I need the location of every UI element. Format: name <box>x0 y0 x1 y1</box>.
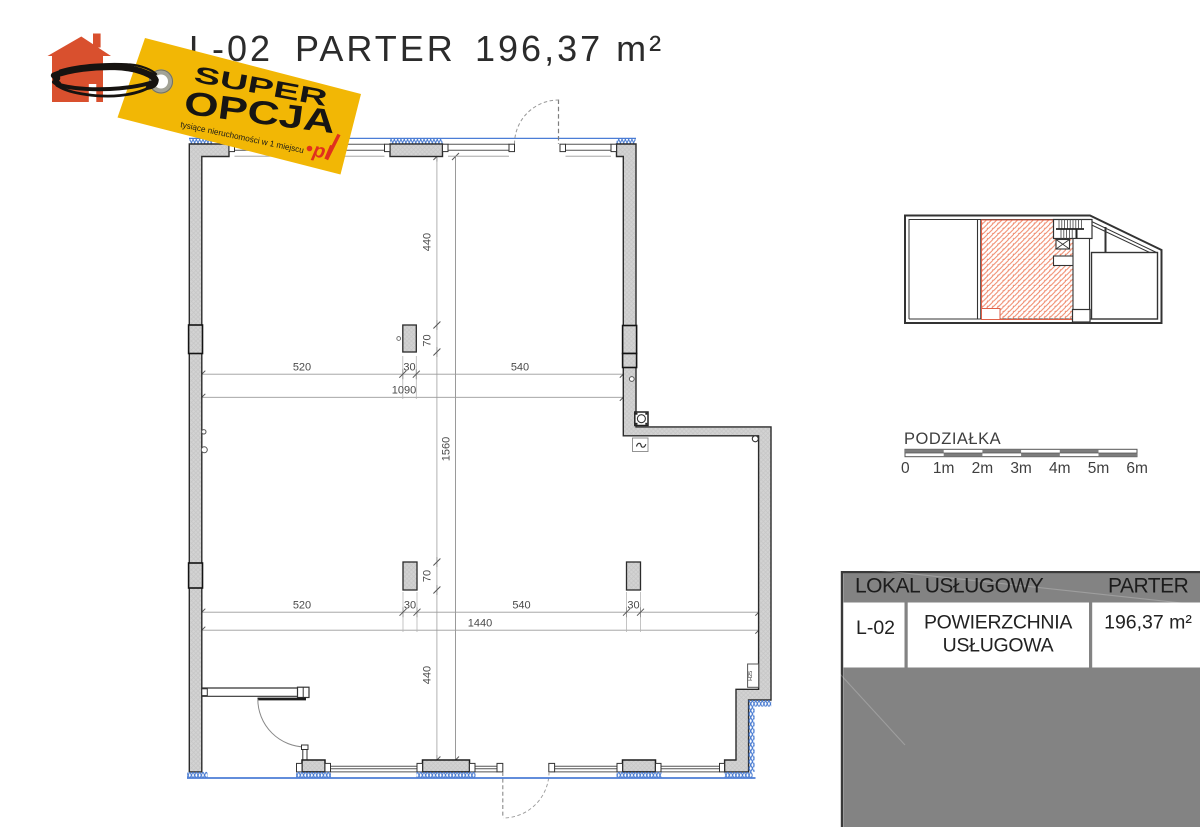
svg-text:1090: 1090 <box>392 385 416 397</box>
svg-text:520: 520 <box>293 600 311 612</box>
svg-text:4m: 4m <box>1049 460 1071 477</box>
svg-text:30: 30 <box>403 362 415 374</box>
svg-text:2m: 2m <box>972 460 994 477</box>
svg-text:3m: 3m <box>1010 460 1032 477</box>
svg-text:70: 70 <box>422 570 434 582</box>
svg-text:440: 440 <box>422 233 434 251</box>
svg-text:30: 30 <box>404 600 416 612</box>
svg-text:440: 440 <box>422 666 434 684</box>
svg-text:6m: 6m <box>1126 460 1148 477</box>
svg-text:5m: 5m <box>1088 460 1110 477</box>
svg-text:520: 520 <box>293 362 311 374</box>
svg-text:0: 0 <box>901 460 910 477</box>
svg-text:540: 540 <box>511 362 529 374</box>
svg-text:30: 30 <box>627 600 639 612</box>
svg-text:1560: 1560 <box>441 437 453 461</box>
svg-text:USŁUGOWA: USŁUGOWA <box>943 635 1054 657</box>
svg-text:1m: 1m <box>933 460 955 477</box>
svg-text:LOKAL USŁUGOWY: LOKAL USŁUGOWY <box>855 575 1044 598</box>
svg-text:PARTER: PARTER <box>295 28 456 69</box>
svg-text:196,37 m²: 196,37 m² <box>1104 612 1192 634</box>
svg-text:70: 70 <box>422 334 434 346</box>
svg-text:1440: 1440 <box>468 618 492 630</box>
svg-text:H25: H25 <box>748 671 754 681</box>
svg-text:PARTER: PARTER <box>1108 575 1189 598</box>
svg-text:196,37 m²: 196,37 m² <box>475 28 664 69</box>
svg-text:POWIERZCHNIA: POWIERZCHNIA <box>924 612 1072 634</box>
svg-text:PODZIAŁKA: PODZIAŁKA <box>904 430 1001 448</box>
svg-text:L-02: L-02 <box>856 617 895 639</box>
svg-text:540: 540 <box>512 600 530 612</box>
